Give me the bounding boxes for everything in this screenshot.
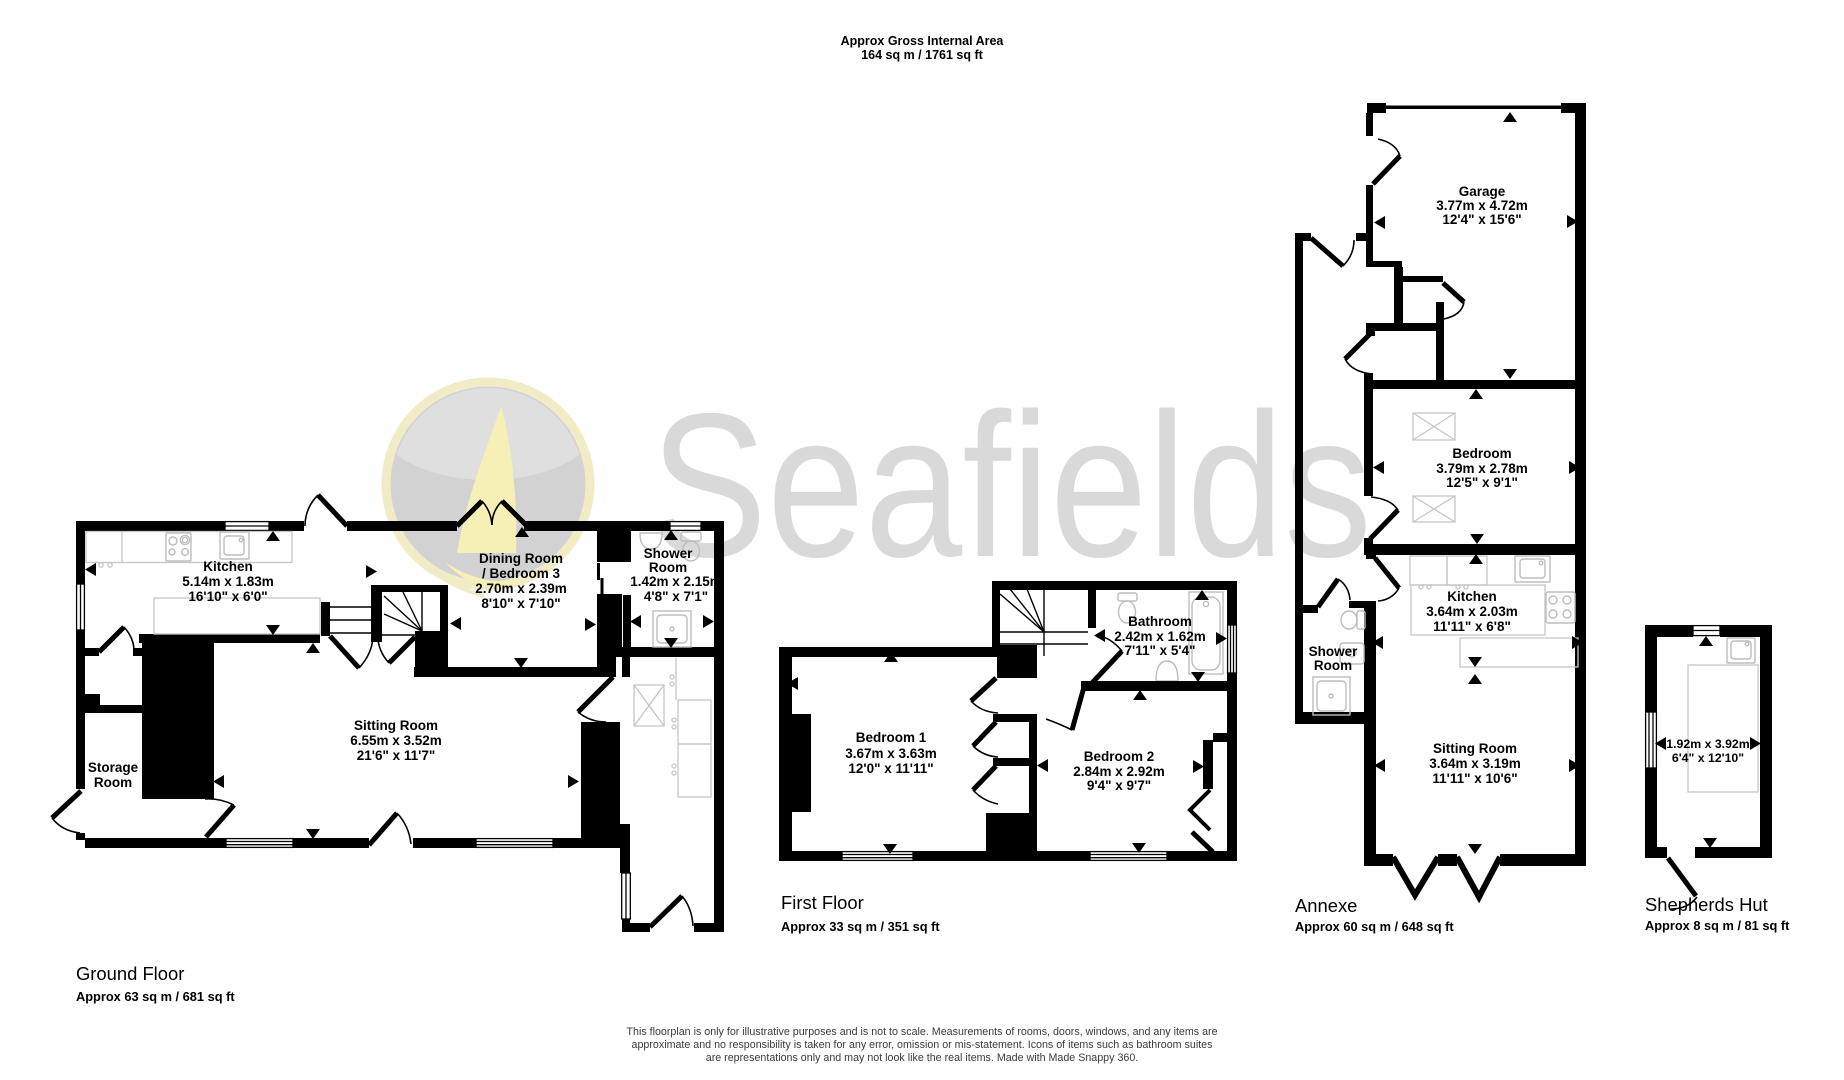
svg-text:This floorplan is only for ill: This floorplan is only for illustrative …	[626, 1026, 1217, 1038]
svg-text:164 sq m / 1761 sq ft: 164 sq m / 1761 sq ft	[861, 48, 983, 62]
svg-text:are representations only and m: are representations only and may not loo…	[706, 1052, 1139, 1064]
svg-text:Approx Gross Internal Area: Approx Gross Internal Area	[841, 34, 1005, 48]
svg-text:3.64m x 3.19m: 3.64m x 3.19m	[1429, 756, 1521, 771]
svg-text:Bedroom: Bedroom	[1452, 446, 1511, 461]
svg-text:2.42m x 1.62m: 2.42m x 1.62m	[1114, 629, 1206, 644]
svg-text:6'4" x 12'10": 6'4" x 12'10"	[1672, 751, 1744, 765]
svg-text:Room: Room	[649, 560, 687, 575]
svg-text:Sitting Room: Sitting Room	[354, 718, 438, 733]
svg-text:21'6" x 11'7": 21'6" x 11'7"	[357, 748, 436, 763]
svg-text:11'11" x 10'6": 11'11" x 10'6"	[1432, 771, 1517, 786]
svg-text:/ Bedroom 3: / Bedroom 3	[482, 566, 561, 581]
svg-text:Garage: Garage	[1459, 184, 1506, 199]
svg-text:Approx 60 sq m / 648 sq ft: Approx 60 sq m / 648 sq ft	[1295, 919, 1454, 934]
svg-text:3.67m x 3.63m: 3.67m x 3.63m	[845, 746, 937, 761]
svg-text:Seafields: Seafields	[650, 371, 1372, 600]
svg-text:Approx 8 sq m / 81 sq ft: Approx 8 sq m / 81 sq ft	[1645, 918, 1790, 933]
svg-text:Kitchen: Kitchen	[203, 559, 253, 574]
svg-text:Approx 63 sq m / 681 sq ft: Approx 63 sq m / 681 sq ft	[76, 989, 235, 1004]
svg-text:12'4" x 15'6": 12'4" x 15'6"	[1442, 212, 1521, 227]
svg-text:9'4" x 9'7": 9'4" x 9'7"	[1087, 778, 1151, 793]
svg-text:Room: Room	[1314, 658, 1352, 673]
svg-text:3.64m x 2.03m: 3.64m x 2.03m	[1426, 604, 1518, 619]
svg-text:approximate and no responsibil: approximate and no responsibility is tak…	[632, 1039, 1213, 1051]
svg-text:Sitting Room: Sitting Room	[1433, 741, 1517, 756]
svg-text:Ground Floor: Ground Floor	[76, 963, 184, 984]
svg-text:8'10" x 7'10": 8'10" x 7'10"	[481, 596, 560, 611]
svg-text:Dining Room: Dining Room	[479, 551, 563, 566]
svg-text:Shower: Shower	[644, 546, 694, 561]
svg-text:Bedroom 1: Bedroom 1	[856, 730, 927, 745]
svg-text:Room: Room	[94, 775, 132, 790]
svg-text:3.77m x 4.72m: 3.77m x 4.72m	[1436, 198, 1528, 213]
svg-text:1.42m x 2.15m: 1.42m x 2.15m	[630, 574, 722, 589]
svg-text:First Floor: First Floor	[781, 892, 864, 913]
svg-text:12'0" x 11'11": 12'0" x 11'11"	[848, 761, 933, 776]
svg-text:2.84m x 2.92m: 2.84m x 2.92m	[1073, 764, 1165, 779]
svg-text:12'5" x 9'1": 12'5" x 9'1"	[1446, 475, 1518, 490]
svg-text:2.70m x 2.39m: 2.70m x 2.39m	[475, 581, 567, 596]
svg-text:Annexe: Annexe	[1295, 895, 1357, 916]
svg-text:Shepherds Hut: Shepherds Hut	[1645, 894, 1768, 915]
svg-text:Bathroom: Bathroom	[1128, 614, 1192, 629]
svg-text:7'11" x 5'4": 7'11" x 5'4"	[1124, 643, 1195, 658]
svg-text:6.55m x 3.52m: 6.55m x 3.52m	[350, 733, 442, 748]
svg-text:4'8" x 7'1": 4'8" x 7'1"	[644, 589, 708, 604]
svg-text:Approx 33 sq m / 351 sq ft: Approx 33 sq m / 351 sq ft	[781, 919, 940, 934]
svg-text:11'11" x 6'8": 11'11" x 6'8"	[1433, 619, 1511, 634]
svg-text:16'10" x 6'0": 16'10" x 6'0"	[188, 589, 267, 604]
svg-text:Kitchen: Kitchen	[1447, 589, 1497, 604]
svg-text:Storage: Storage	[88, 760, 139, 775]
svg-text:Bedroom 2: Bedroom 2	[1084, 749, 1155, 764]
svg-text:3.79m x 2.78m: 3.79m x 2.78m	[1436, 461, 1528, 476]
svg-text:1.92m x 3.92m: 1.92m x 3.92m	[1666, 737, 1749, 751]
svg-text:Shower: Shower	[1309, 644, 1359, 659]
svg-text:5.14m x 1.83m: 5.14m x 1.83m	[182, 574, 274, 589]
